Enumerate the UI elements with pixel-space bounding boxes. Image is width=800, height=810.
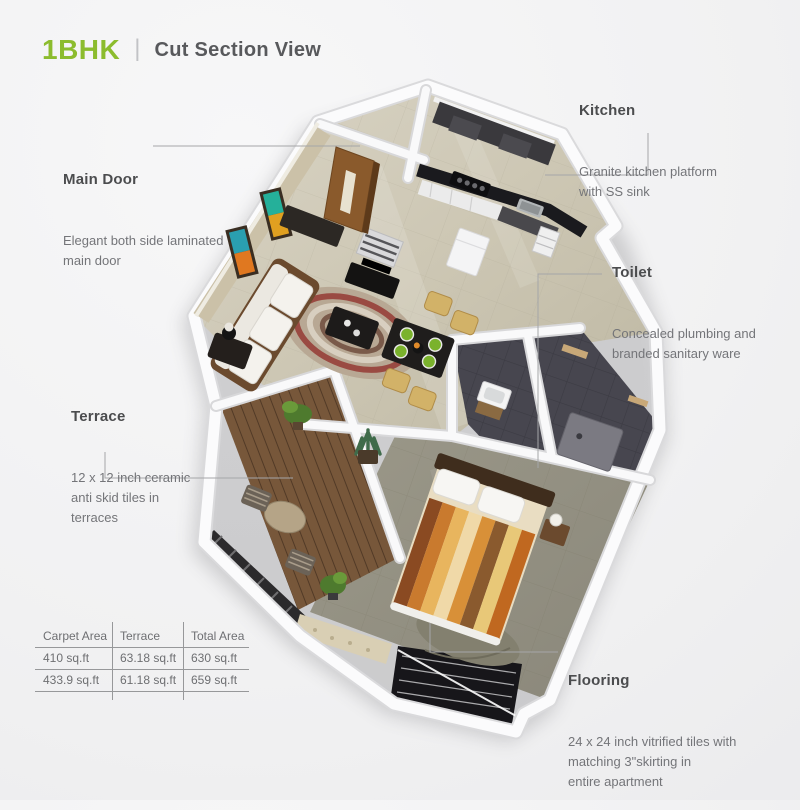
- annotation-body: Elegant both side laminated main door: [63, 231, 223, 271]
- flooring-leader: [430, 623, 558, 652]
- page-header: 1BHK | Cut Section View: [42, 34, 321, 66]
- title-divider: |: [134, 35, 140, 63]
- toilet-leader: [538, 274, 602, 468]
- annotation-toilet: Toilet Concealed plumbing and branded sa…: [612, 228, 756, 382]
- annotation-heading: Flooring: [568, 672, 736, 689]
- table-line: [35, 691, 249, 692]
- page-subtitle: Cut Section View: [154, 39, 321, 62]
- table-row: 410 sq.ft 63.18 sq.ft 630 sq.ft: [35, 647, 249, 669]
- table-cell: 63.18 sq.ft: [112, 651, 183, 665]
- annotation-heading: Kitchen: [579, 102, 717, 119]
- annotation-heading: Terrace: [71, 408, 190, 425]
- table-cell: 433.9 sq.ft: [35, 673, 112, 687]
- annotation-body: Granite kitchen platform with SS sink: [579, 162, 717, 202]
- annotation-body: 24 x 24 inch vitrified tiles with matchi…: [568, 732, 736, 792]
- page-title: 1BHK: [42, 34, 120, 66]
- annotation-body: 12 x 12 inch ceramic anti skid tiles in …: [71, 468, 190, 528]
- annotation-terrace: Terrace 12 x 12 inch ceramic anti skid t…: [71, 372, 190, 546]
- column-header: Terrace: [112, 629, 183, 643]
- table-cell: 61.18 sq.ft: [112, 673, 183, 687]
- table-header-row: Carpet Area Terrace Total Area: [35, 625, 249, 647]
- page: { "header": { "title": "1BHK", "divider"…: [0, 0, 800, 800]
- area-table: Carpet Area Terrace Total Area 410 sq.ft…: [35, 624, 249, 698]
- annotation-body: Concealed plumbing and branded sanitary …: [612, 324, 756, 364]
- table-row: 433.9 sq.ft 61.18 sq.ft 659 sq.ft: [35, 669, 249, 691]
- table-cell: 630 sq.ft: [183, 651, 249, 665]
- annotation-main-door: Main Door Elegant both side laminated ma…: [63, 135, 223, 289]
- annotation-flooring: Flooring 24 x 24 inch vitrified tiles wi…: [568, 636, 736, 810]
- column-header: Carpet Area: [35, 629, 112, 643]
- table-cell: 659 sq.ft: [183, 673, 249, 687]
- annotation-heading: Toilet: [612, 264, 756, 281]
- annotation-kitchen: Kitchen Granite kitchen platform with SS…: [579, 66, 717, 220]
- column-header: Total Area: [183, 629, 249, 643]
- table-cell: 410 sq.ft: [35, 651, 112, 665]
- annotation-heading: Main Door: [63, 171, 223, 188]
